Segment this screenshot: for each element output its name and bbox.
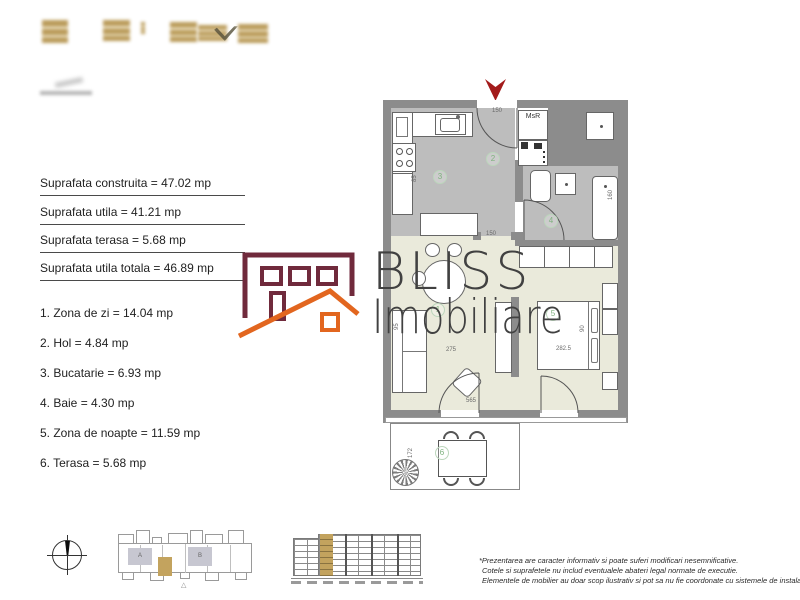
room-number-bathroom: 4	[544, 214, 558, 228]
site-plan-bump	[190, 530, 203, 544]
measurement-line: Suprafata utila totala = 46.89 mp	[40, 261, 245, 281]
nightstand	[602, 283, 618, 309]
wall-segment	[511, 232, 523, 240]
site-section-a: A	[128, 548, 152, 565]
room-list-item: 3. Bucatarie = 6.93 mp	[40, 366, 161, 380]
site-plan-bump	[136, 530, 150, 544]
measurement-line: Suprafata terasa = 5.68 mp	[40, 233, 245, 253]
dim-entrance: 150	[492, 108, 502, 114]
closet-dot	[543, 151, 545, 153]
plant-icon	[392, 459, 419, 486]
stove	[392, 143, 416, 172]
elevation-base-dashes	[291, 581, 423, 584]
sofa-cushion-line	[402, 351, 426, 352]
fridge	[396, 117, 408, 137]
site-plan-bump	[205, 572, 219, 581]
site-plan-line	[230, 545, 231, 572]
kitchen-bar	[420, 213, 478, 236]
site-plan-bump	[152, 537, 162, 544]
blurred-logo-block	[42, 20, 68, 43]
wardrobe-divider	[594, 247, 595, 267]
pillow	[591, 338, 598, 363]
sink-drain-dot	[565, 183, 568, 186]
room-list-item: 4. Baie = 4.30 mp	[40, 396, 134, 410]
bath-sink	[555, 173, 576, 195]
bathtub	[592, 176, 618, 240]
dim-bath: 160	[608, 190, 614, 200]
site-plan-bump	[180, 572, 190, 579]
wardrobe-divider	[569, 247, 570, 267]
sink-faucet	[456, 115, 460, 119]
disclaimer-line: Elementele de mobilier au doar scop ilus…	[482, 576, 800, 586]
elevation-pillar	[345, 534, 347, 576]
elevation-highlighted-column	[320, 534, 333, 576]
dim-bedroom-width: 282.5	[556, 346, 571, 352]
closet-detail	[534, 143, 542, 149]
measurement-line: Suprafata utila = 41.21 mp	[40, 205, 245, 225]
room-list-item: 5. Zona de noapte = 11.59 mp	[40, 426, 200, 440]
site-plan-bump	[228, 530, 244, 544]
room-list-item: 2. Hol = 4.84 mp	[40, 336, 128, 350]
room-number-terrace: 6	[435, 446, 449, 460]
tub-drain-dot	[604, 185, 607, 188]
nightstand	[602, 372, 618, 390]
site-plan-bump	[168, 533, 188, 544]
room-number-hall: 2	[486, 152, 500, 166]
pillow	[591, 308, 598, 333]
sink-basin	[440, 118, 460, 132]
wall-segment	[578, 410, 618, 417]
storage-closet	[518, 140, 548, 166]
burner	[396, 160, 403, 167]
niche-dot	[600, 125, 603, 128]
blurred-logo-block	[238, 24, 268, 43]
site-plan-bump	[205, 534, 223, 544]
elevation-pillar	[397, 534, 399, 576]
wall-segment	[383, 100, 477, 108]
elevation-pillar	[371, 534, 373, 576]
elevation-base-line	[291, 578, 423, 579]
site-plan-bump	[235, 572, 247, 580]
dim-hall-opening: 150	[486, 231, 496, 237]
wardrobe-divider	[544, 247, 545, 267]
wall-segment	[618, 166, 628, 417]
wall-segment	[479, 410, 540, 417]
site-marker-triangle: △	[181, 581, 186, 589]
room-list-item: 1. Zona de zi = 14.04 mp	[40, 306, 173, 320]
brand-subname: Imobiliare	[372, 294, 563, 341]
burner	[406, 160, 413, 167]
dim-terrace-depth: 172	[408, 448, 414, 458]
dim-bed-side: 90	[580, 325, 586, 332]
site-plan-line	[185, 544, 186, 573]
closet-dot	[543, 161, 545, 163]
elevation-grid-right	[318, 534, 421, 576]
burner	[396, 148, 403, 155]
wardrobe	[519, 246, 613, 268]
room-list-item: 6. Terasa = 5.68 mp	[40, 456, 146, 470]
nightstand	[602, 309, 618, 335]
bed-headboard-line	[588, 302, 589, 369]
blurred-logo-block	[103, 20, 130, 41]
dim-kitchen: 85	[412, 175, 418, 182]
blurred-logo-block	[170, 22, 197, 42]
wall-segment	[515, 160, 523, 202]
brand-house-icon	[238, 246, 368, 342]
smudge-mark	[40, 91, 92, 95]
washer-closet: MsR	[518, 110, 548, 140]
toilet	[530, 170, 551, 202]
entrance-arrow-icon	[485, 79, 506, 100]
floorplan-presentation-page: Suprafata construita = 47.02 mp Suprafat…	[0, 0, 800, 600]
dim-bottom-width: 565	[466, 398, 476, 404]
site-plan-bump	[122, 572, 134, 580]
closet-detail	[521, 142, 528, 149]
disclaimer-line: Cotele si suprafetele nu includ eventual…	[482, 566, 738, 576]
room-number-kitchen: 3	[433, 170, 447, 184]
dim-living-width: 275	[446, 347, 456, 353]
kitchen-sink	[435, 114, 466, 135]
measurement-line: Suprafata construita = 47.02 mp	[40, 176, 245, 196]
burner	[406, 148, 413, 155]
site-section-b: B	[188, 547, 212, 566]
elevation-grid-left	[293, 538, 319, 576]
smudge-mark	[55, 77, 83, 88]
blurred-logo-tick	[141, 22, 145, 34]
site-highlighted-unit	[158, 557, 172, 576]
closet-dot	[543, 156, 545, 158]
disclaimer-line: *Prezentarea are caracter informativ si …	[479, 556, 738, 566]
site-plan-bump	[118, 534, 134, 544]
cabinet-divider	[393, 173, 412, 174]
washer-closet-label: MsR	[519, 113, 547, 120]
shaft-niche	[586, 112, 614, 140]
